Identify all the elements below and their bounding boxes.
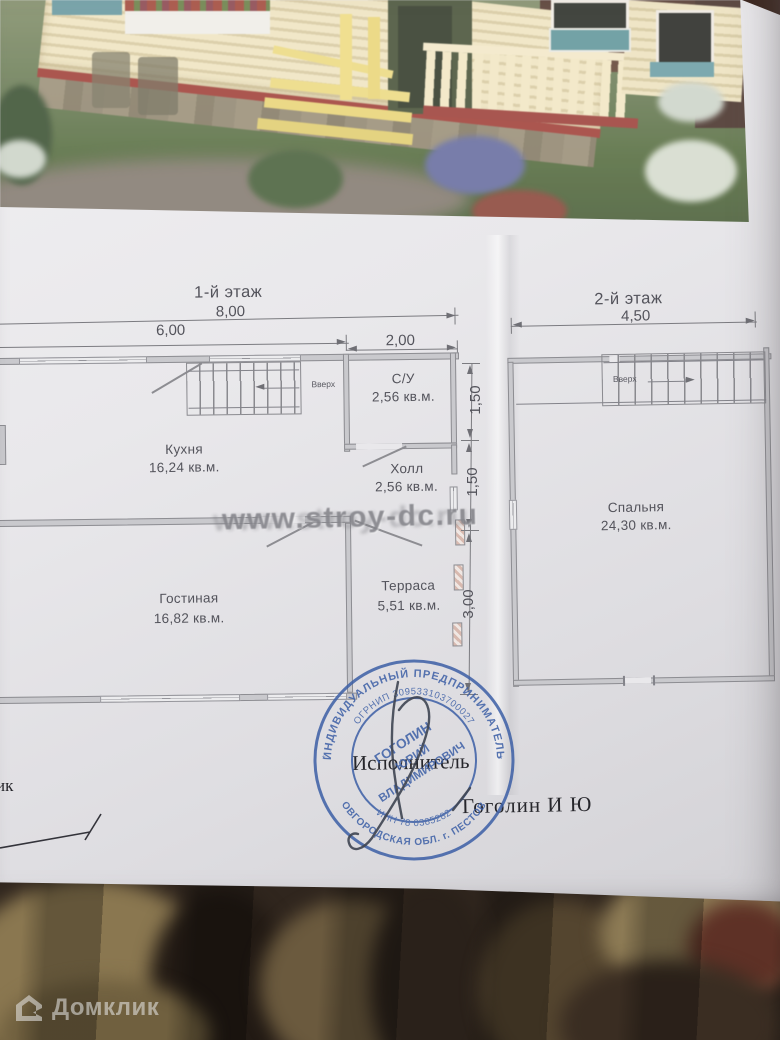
room-name-bathroom: С/У	[353, 370, 453, 387]
room-area-terrace: 5,51 кв.м.	[354, 597, 464, 614]
terrace-post	[452, 622, 462, 646]
stamp-star-left: *	[322, 754, 326, 764]
room-area-hall: 2,56 кв.м.	[351, 478, 461, 495]
house-photo	[0, 0, 780, 230]
domclick-watermark: Домклик	[14, 993, 159, 1023]
stairs-up-arrow	[255, 384, 264, 390]
dimension-line	[346, 348, 458, 350]
domclick-brand-label: Домклик	[52, 994, 159, 1022]
room-area-bathroom: 2,56 кв.м.	[348, 388, 458, 405]
dim-arrow	[447, 344, 456, 350]
signature-line	[0, 806, 120, 854]
dim-arrow	[513, 322, 522, 328]
window-symbol	[19, 356, 147, 365]
site-watermark: www.stroy-dc.ru	[222, 496, 558, 537]
dim-arrow	[348, 346, 357, 352]
dimension-line	[0, 343, 349, 348]
window-opening	[625, 677, 651, 683]
floor1-dim-right: 2,00	[353, 332, 448, 350]
room-name-living: Гостиная	[99, 590, 279, 608]
wall-cap	[653, 675, 655, 685]
wall	[0, 425, 6, 465]
dim-tick	[454, 307, 455, 324]
room-name-hall: Холл	[354, 460, 459, 477]
room-name-bedroom: Спальня	[566, 498, 706, 516]
svg-text:ИНН 78 0385282: ИНН 78 0385282	[375, 807, 454, 829]
print-wash-overlay	[0, 0, 780, 230]
paper-sheet: 1-й этаж 8,00 6,00 2,00	[0, 0, 780, 905]
photographed-floorplan-document: 1-й этаж 8,00 6,00 2,00	[0, 0, 780, 1040]
room-name-kitchen: Кухня	[94, 441, 274, 459]
dim-arrow	[746, 318, 755, 324]
room-area-living: 16,82 кв.м.	[99, 610, 279, 628]
dim-arrow	[337, 339, 346, 345]
wall-cap	[623, 676, 625, 686]
room-name-terrace: Терраса	[356, 577, 461, 594]
domclick-house-icon	[14, 993, 44, 1023]
floor2-plan: 2-й этаж 4,50 Вверх Спальня 24,30 кв.м.	[500, 275, 780, 710]
stamp-outer-top-text: ИНДИВИДУАЛЬНЫЙ ПРЕДПРИНИМАТЕЛЬ	[322, 667, 506, 760]
room-area-kitchen: 16,24 кв.м.	[94, 459, 274, 477]
door-opening	[356, 443, 402, 450]
stairs-up-arrow	[686, 377, 695, 383]
partial-left-label: ик	[0, 776, 13, 796]
room-area-bedroom: 24,30 кв.м.	[566, 516, 706, 534]
stairs-up-label: Вверх	[606, 375, 644, 385]
floor1-dim-left: 6,00	[101, 321, 241, 340]
floor1-title: 1-й этаж	[148, 282, 308, 303]
stairs-up-label: Вверх	[303, 380, 343, 390]
stamp-inn-text: ИНН 78 0385282	[375, 807, 454, 829]
company-stamp: ИНДИВИДУАЛЬНЫЙ ПРЕДПРИНИМАТЕЛЬ НОВГОРОДС…	[302, 648, 527, 873]
background-corner	[742, 0, 780, 15]
dim-tick	[755, 312, 756, 328]
dim-tick	[511, 318, 512, 334]
dim-tick	[346, 335, 347, 351]
window-symbol	[100, 694, 240, 703]
svg-text:ИНДИВИДУАЛЬНЫЙ ПРЕДПРИНИМАТЕЛЬ: ИНДИВИДУАЛЬНЫЙ ПРЕДПРИНИМАТЕЛЬ	[322, 667, 506, 760]
stamp-star-right: *	[499, 754, 503, 764]
